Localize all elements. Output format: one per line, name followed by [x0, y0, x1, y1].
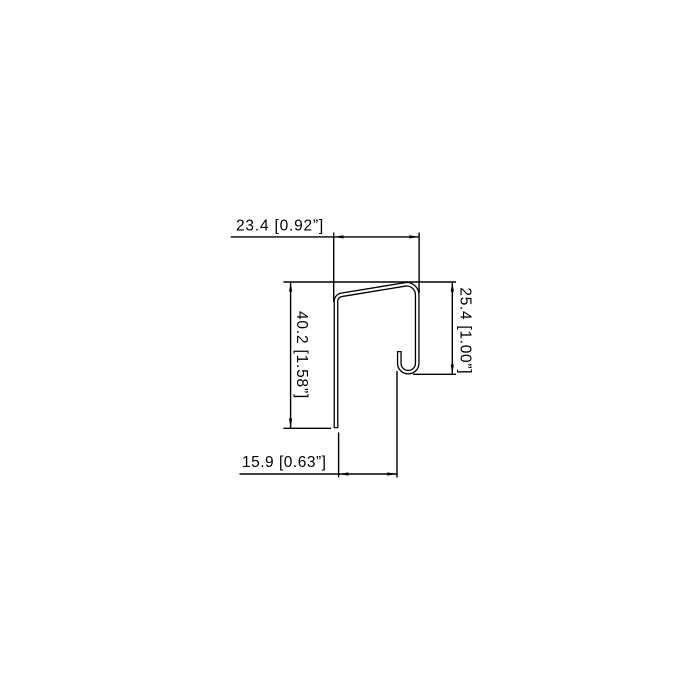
svg-text:25.4 [1.00”]: 25.4 [1.00”] [457, 287, 474, 374]
svg-text:40.2 [1.58”]: 40.2 [1.58”] [293, 311, 310, 399]
svg-text:15.9 [0.63”]: 15.9 [0.63”] [242, 454, 326, 471]
svg-text:23.4 [0.92”]: 23.4 [0.92”] [236, 218, 324, 235]
